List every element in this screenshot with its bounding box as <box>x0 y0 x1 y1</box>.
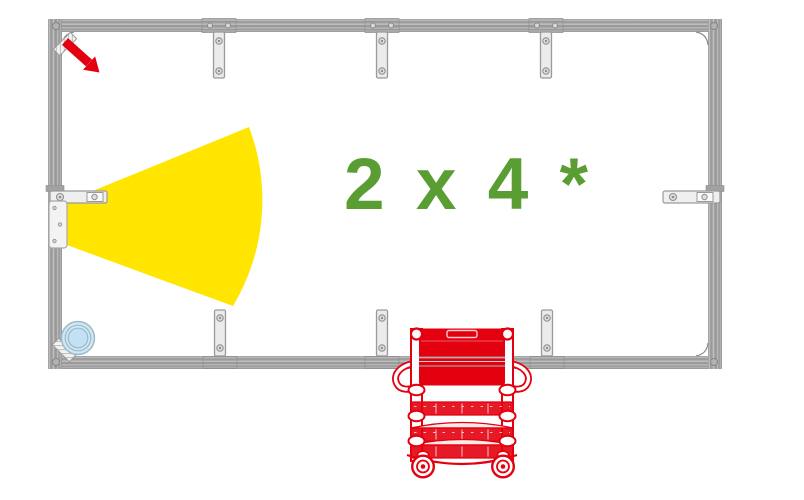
wall-bracket-right <box>663 191 720 203</box>
detection-beam <box>56 127 262 306</box>
cart-shelf <box>411 402 513 415</box>
entrance-arrow-icon <box>65 42 100 73</box>
floor-plan-drawing <box>0 0 804 500</box>
wall-bracket <box>530 310 564 369</box>
wall-bracket <box>529 19 563 79</box>
cart-wheel <box>412 456 434 478</box>
wall-bracket <box>202 19 236 79</box>
cart-shelf <box>411 423 513 442</box>
cart-wheel <box>492 456 514 478</box>
wall-bracket <box>203 310 237 369</box>
wall-bracket <box>365 310 399 369</box>
floor-drain-icon <box>62 322 95 355</box>
wall-bracket <box>365 19 399 79</box>
room-floor-plan: 2 x 4 * <box>0 0 804 500</box>
sensor-mount-plate <box>49 201 67 248</box>
equipment-cart <box>396 329 529 478</box>
capacity-label: 2 x 4 * <box>344 148 590 221</box>
